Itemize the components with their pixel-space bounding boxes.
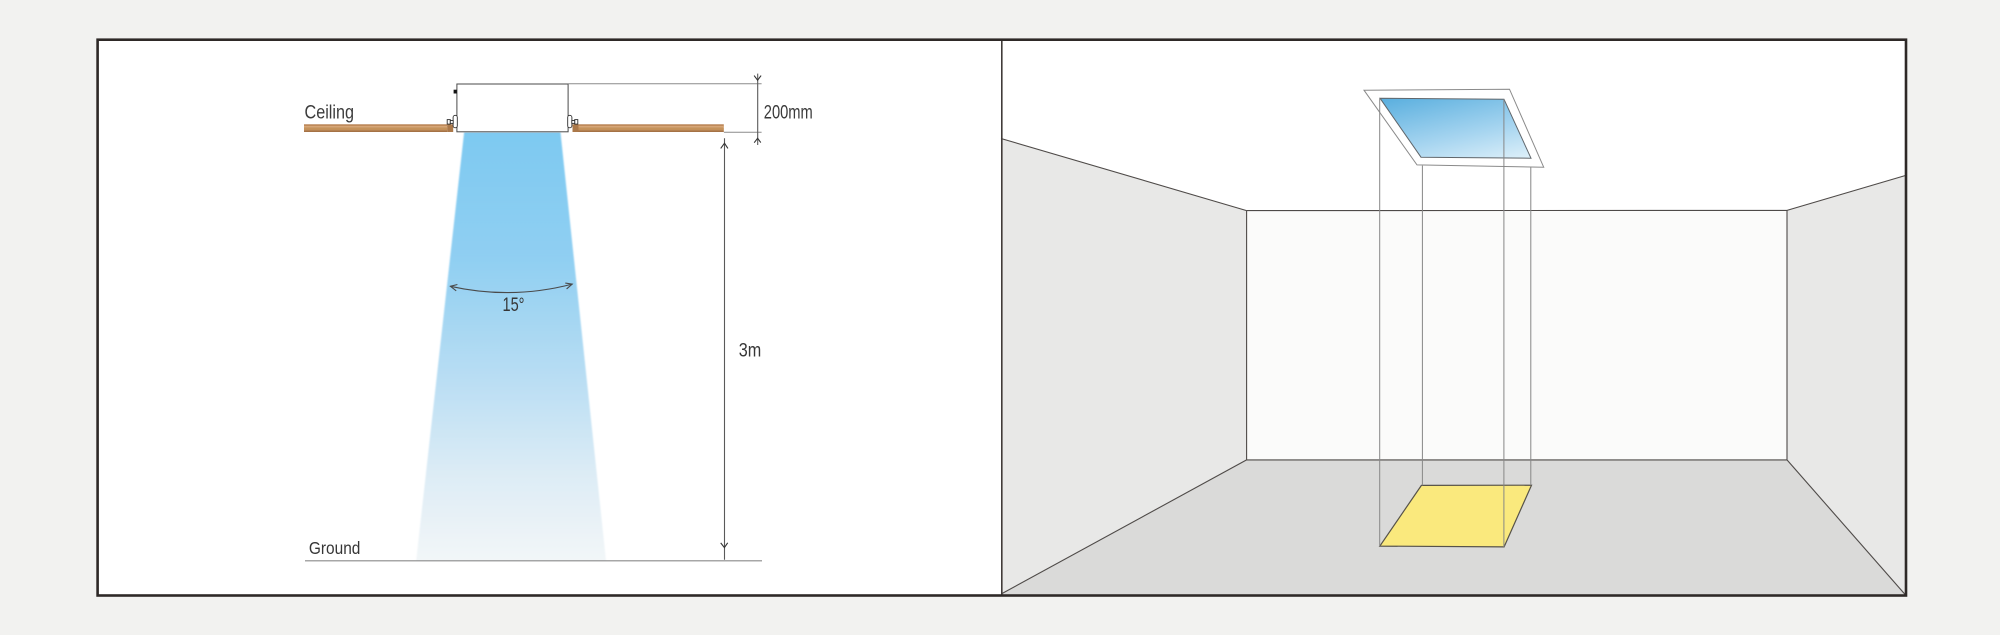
svg-text:15°: 15° xyxy=(503,295,525,316)
svg-text:3m: 3m xyxy=(739,341,762,362)
svg-text:200mm: 200mm xyxy=(764,102,813,124)
svg-text:Ground: Ground xyxy=(309,538,361,558)
svg-text:Ceiling: Ceiling xyxy=(305,103,355,124)
